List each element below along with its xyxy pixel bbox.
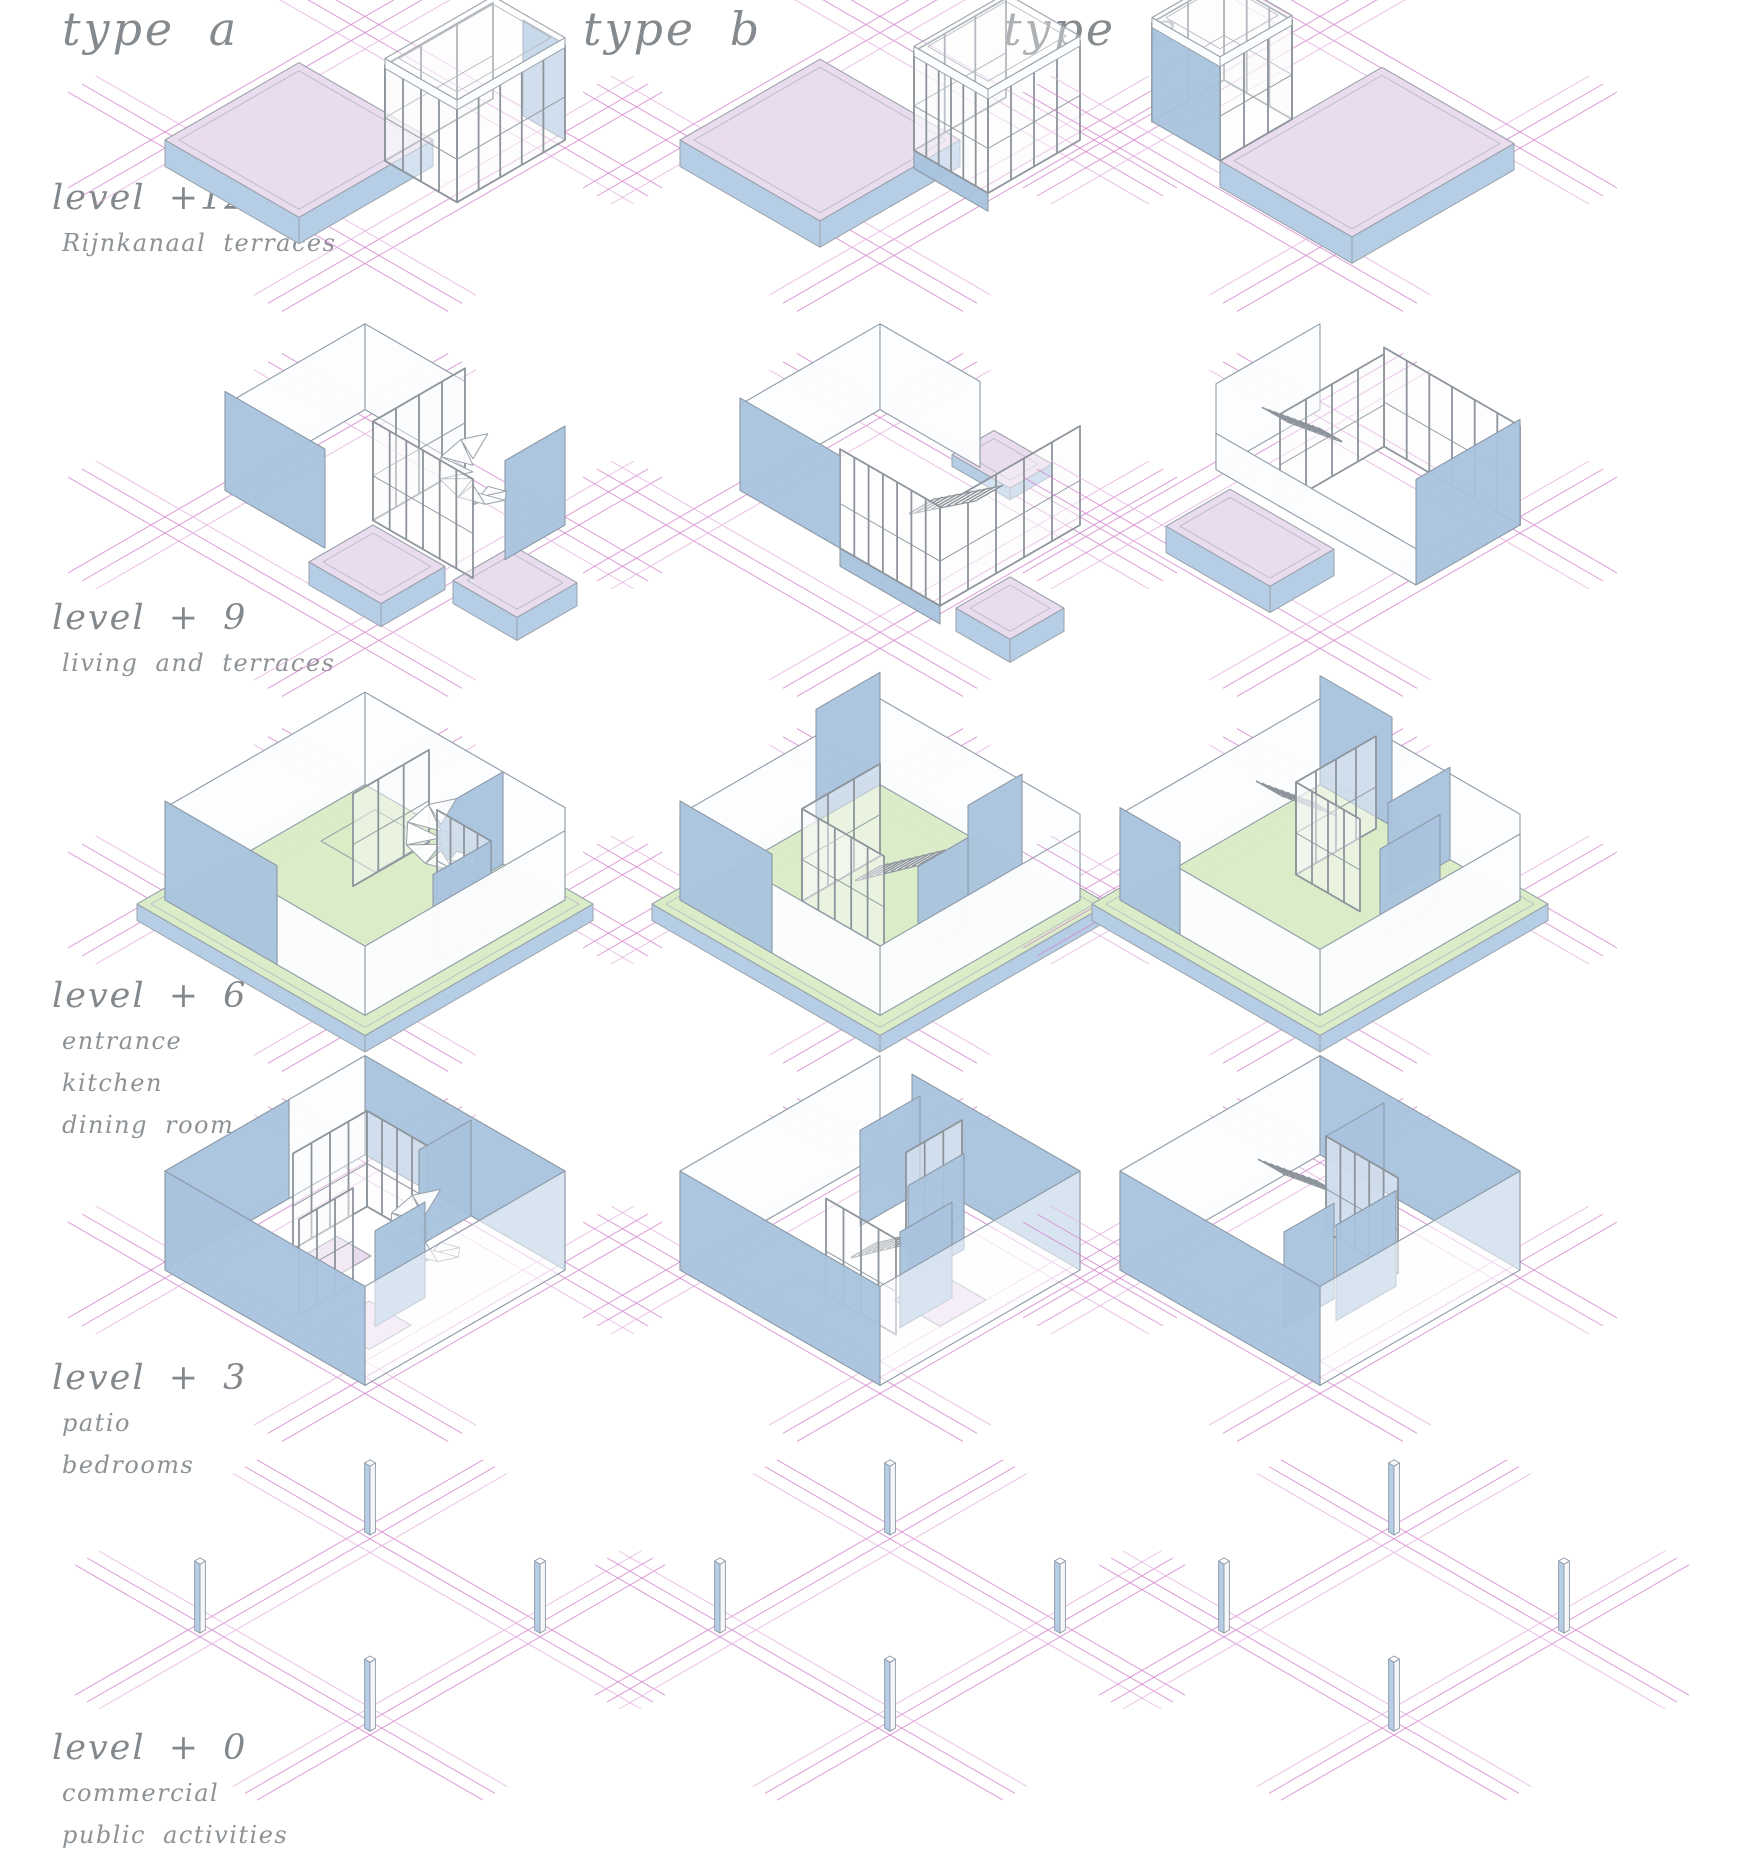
level-desc-line: kitchen <box>62 1066 247 1100</box>
drawing-sheet: type a type b type c level +12 Rijnkanaa… <box>0 0 1754 1854</box>
axon-type-a-level-9 <box>105 360 625 690</box>
axon-type-a-level-12 <box>105 0 625 305</box>
axon-type-c-level-9 <box>1060 360 1580 690</box>
axon-type-b-level-0 <box>610 1350 1170 1854</box>
axon-type-c-level-12 <box>1060 0 1580 305</box>
axon-type-c-level-0 <box>1114 1350 1674 1854</box>
axon-type-c-level-6 <box>1060 735 1580 1065</box>
axon-type-a-level-0 <box>90 1350 650 1854</box>
axon-type-a-level-6 <box>105 735 625 1065</box>
